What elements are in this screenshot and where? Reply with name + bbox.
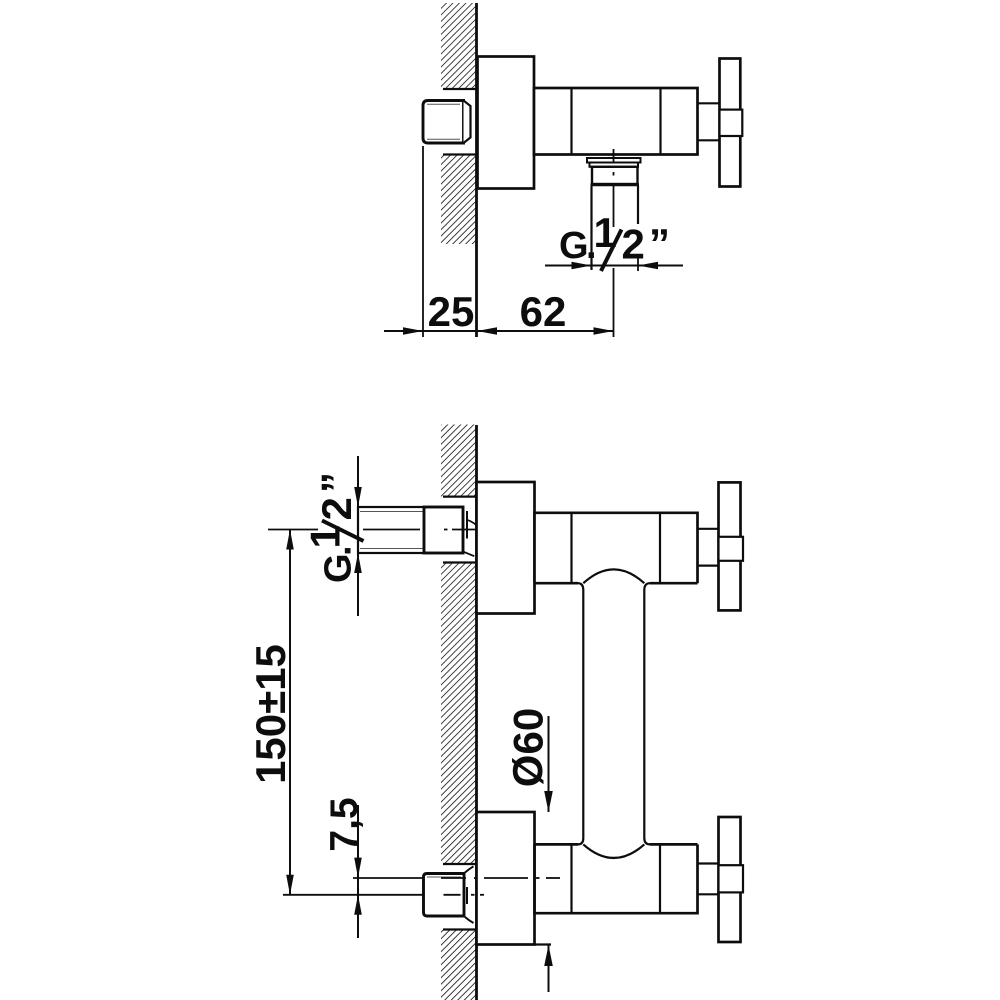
svg-text:G: G	[318, 553, 360, 583]
svg-text:2: 2	[622, 221, 645, 268]
svg-text:25: 25	[428, 288, 475, 335]
svg-text:62: 62	[520, 288, 567, 335]
svg-text:”: ”	[313, 472, 360, 493]
svg-text:Ø60: Ø60	[505, 708, 552, 787]
svg-text:G: G	[559, 225, 589, 267]
svg-text:”: ”	[649, 220, 670, 267]
svg-text:2: 2	[313, 497, 360, 520]
svg-text:150±15: 150±15	[247, 644, 294, 784]
svg-text:7,5: 7,5	[323, 797, 366, 851]
